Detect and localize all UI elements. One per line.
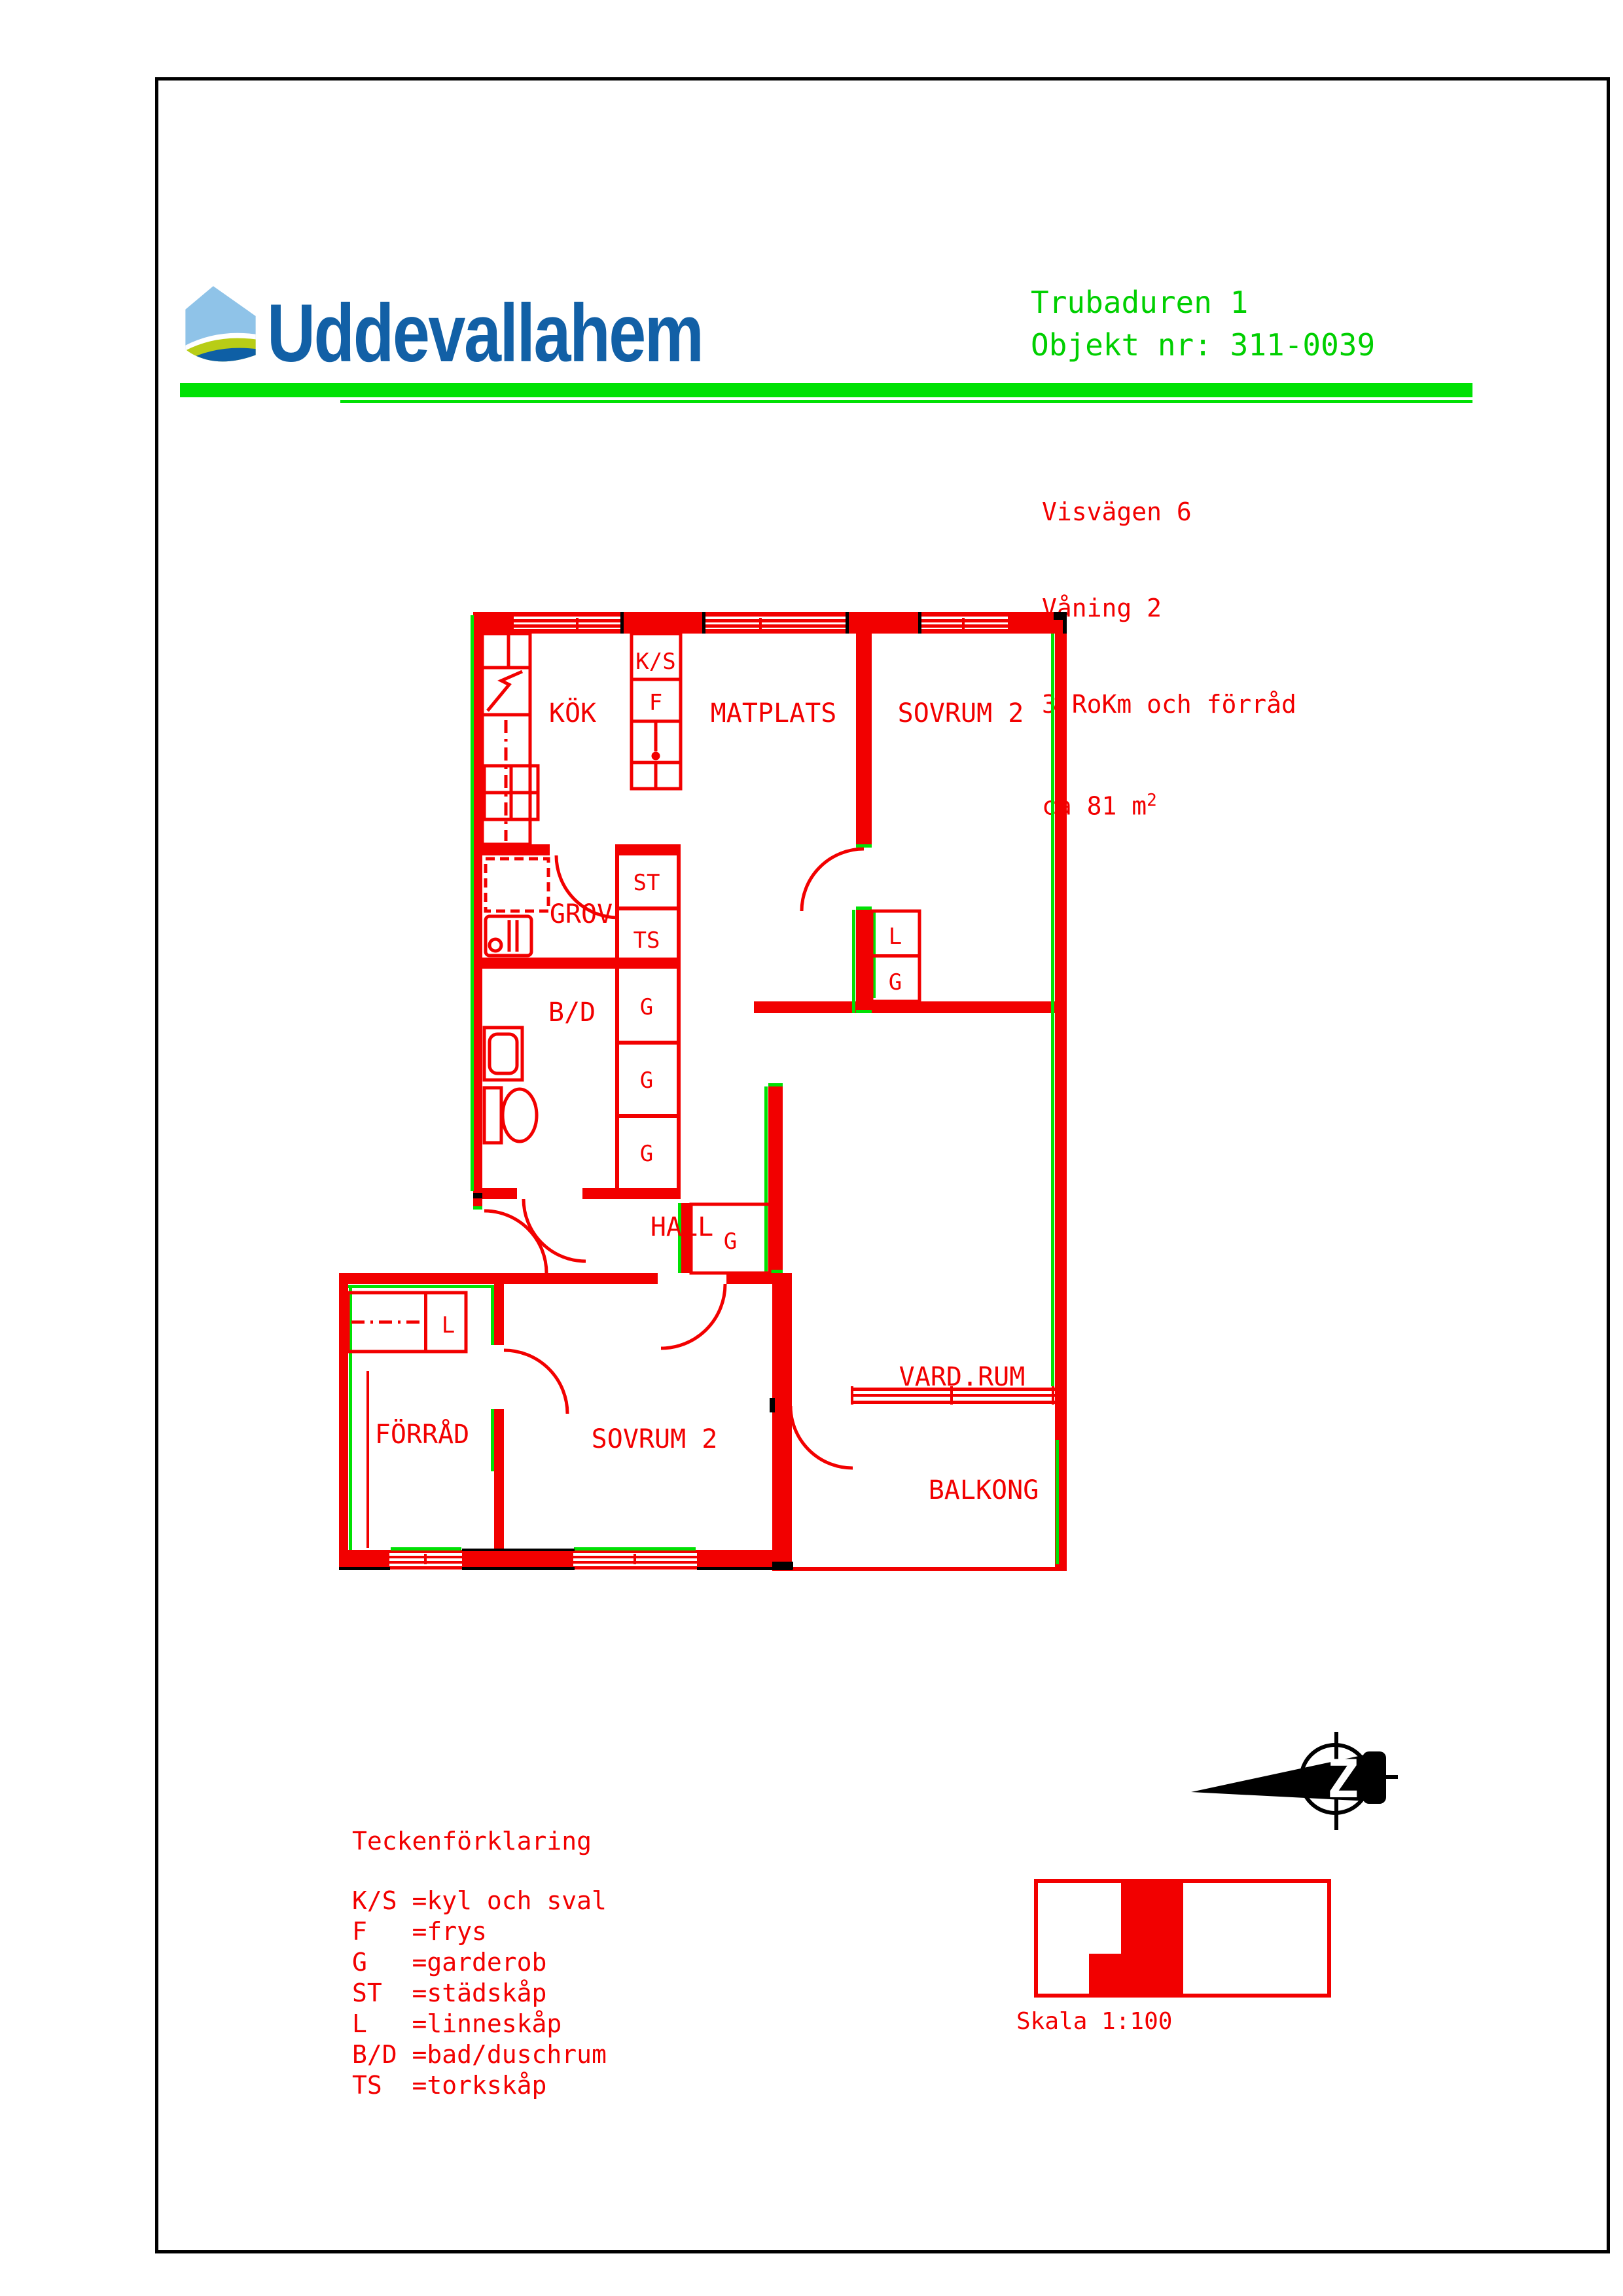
closet-label-g-hall: G	[724, 1229, 737, 1255]
toilet-icon	[484, 1088, 501, 1143]
legend-item: F=frys	[352, 1916, 607, 1947]
kitchen-counter	[482, 634, 538, 844]
door-arc-entry-hall	[484, 1211, 546, 1273]
stove-icon	[488, 672, 522, 711]
legend-abbr: F	[352, 1916, 412, 1947]
legend-item: G=garderob	[352, 1947, 607, 1978]
legend-abbr: L	[352, 2009, 412, 2039]
legend-item: K/S=kyl och sval	[352, 1886, 607, 1916]
legend-item: B/D=bad/duschrum	[352, 2039, 607, 2070]
compass-north-arrow: Z	[1191, 1732, 1398, 1830]
legend-abbr: B/D	[352, 2039, 412, 2070]
room-label-grov: GROV	[550, 899, 613, 929]
room-label-matplats: MATPLATS	[711, 698, 837, 728]
scale-label: Skala 1:100	[1016, 2008, 1172, 2035]
laundry-fixtures	[486, 859, 548, 956]
legend: Teckenförklaring K/S=kyl och sval F=frys…	[352, 1826, 607, 2101]
door-arc-matplats-sovrum	[802, 849, 864, 911]
bathroom-fixtures	[484, 1028, 537, 1143]
building-location-map	[1036, 1881, 1329, 1996]
door-arc-vardrum-balkong	[791, 1406, 853, 1468]
legend-item: L=linneskåp	[352, 2009, 607, 2039]
room-label-bd: B/D	[548, 997, 596, 1028]
closet-label-l-sovrum: L	[889, 924, 902, 950]
legend-desc: =garderob	[412, 1948, 547, 1977]
legend-item: TS=torkskåp	[352, 2070, 607, 2101]
closet-label-g3: G	[640, 1141, 653, 1167]
room-label-kok: KÖK	[549, 697, 596, 728]
floor-plan: KÖK MATPLATS SOVRUM 2 GROV B/D HALL FÖRR…	[0, 0, 1623, 2296]
legend-desc: =bad/duschrum	[412, 2040, 607, 2069]
legend-title: Teckenförklaring	[352, 1826, 607, 1857]
closet-label-l-forrad: L	[442, 1312, 455, 1338]
room-label-balkong: BALKONG	[929, 1475, 1039, 1505]
door-arc-forrad-sovrum	[504, 1350, 567, 1414]
legend-desc: =kyl och sval	[412, 1886, 607, 1915]
legend-desc: =linneskåp	[412, 2009, 562, 2038]
legend-desc: =städskåp	[412, 1979, 547, 2007]
room-label-sovrum2-lower: SOVRUM 2	[592, 1424, 718, 1454]
closet-label-g-sovrum: G	[889, 969, 902, 996]
closet-label-f: F	[649, 690, 662, 716]
compass-letter: Z	[1327, 1749, 1359, 1810]
room-label-forrad: FÖRRÅD	[375, 1418, 470, 1450]
room-label-sovrum2-upper: SOVRUM 2	[898, 698, 1024, 728]
door-arcs	[484, 849, 864, 1468]
legend-abbr: G	[352, 1947, 412, 1978]
door-arc-bd-hall	[524, 1199, 586, 1261]
closet-label-ts: TS	[633, 927, 660, 954]
legend-abbr: TS	[352, 2070, 412, 2101]
apartment-position-marker	[1089, 1881, 1183, 1996]
legend-abbr: K/S	[352, 1886, 412, 1916]
closet-label-g1: G	[640, 994, 653, 1020]
room-label-hall: HALL	[651, 1212, 713, 1242]
room-label-vardrum: VARD.RUM	[899, 1362, 1026, 1392]
closet-label-st: ST	[633, 870, 660, 896]
closet-label-g2: G	[640, 1067, 653, 1094]
door-arc-hall-sovrum	[661, 1284, 725, 1348]
legend-item: ST=städskåp	[352, 1978, 607, 2009]
floorplan-sheet: Uddevallahem Trubaduren 1Objekt nr: 311-…	[0, 0, 1623, 2296]
legend-desc: =frys	[412, 1917, 487, 1946]
legend-abbr: ST	[352, 1978, 412, 2009]
legend-desc: =torkskåp	[412, 2071, 547, 2100]
closet-label-ks: K/S	[635, 649, 675, 675]
